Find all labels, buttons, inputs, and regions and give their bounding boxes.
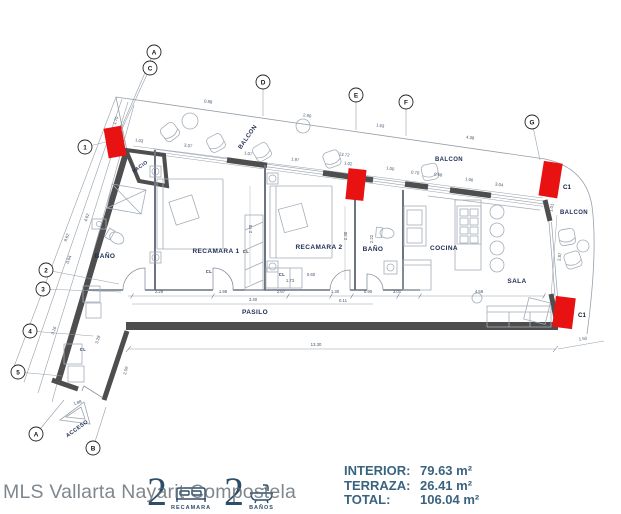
grid-bubble-label: 4 xyxy=(28,328,32,335)
grid-bubble-label: 5 xyxy=(16,369,20,376)
dimension-label: 1.98 xyxy=(219,289,228,294)
dimension-label: 1.07 xyxy=(244,150,254,156)
grid-leader-line xyxy=(46,270,119,284)
dimension-label: 2.90 xyxy=(303,112,313,118)
grid-bubble-label: C xyxy=(148,65,153,72)
grid-bubble-label: E xyxy=(354,92,359,99)
grid-bubble-label: 2 xyxy=(44,267,48,274)
dimension-label: 4.58 xyxy=(475,289,484,294)
room-label-balcon: BALCON xyxy=(435,157,463,163)
room-label-sala: SALA xyxy=(507,278,526,285)
dimension-label: 2.22 xyxy=(369,234,374,243)
dimension-label: 3.28 xyxy=(94,334,101,344)
room-label-cl: CL xyxy=(243,249,249,254)
dimension-label: 1.97 xyxy=(291,156,301,162)
grid-bubble-label: G xyxy=(530,119,535,126)
room-label-cocina: COCINA xyxy=(430,245,458,252)
column-marker-red xyxy=(345,168,366,201)
dimension-label: 13.30 xyxy=(311,342,322,347)
grid-bubble-label: A xyxy=(34,431,39,438)
dimension-label: 1.30 xyxy=(331,289,340,294)
dimension-label: 13.72 xyxy=(339,151,351,158)
dimension-label: 0.88 xyxy=(204,98,214,104)
floorplan-page: { "watermark": "MLS Vallarta Nayarit Com… xyxy=(0,0,621,511)
dimension-label: 0.68 xyxy=(434,171,444,177)
room-label-cl: CL xyxy=(80,347,86,352)
room-label-balcon: BALCON xyxy=(560,210,588,216)
room-label-baño: BAÑO xyxy=(363,244,384,253)
walls xyxy=(52,150,558,400)
grid-bubble-label: A xyxy=(152,49,157,56)
grid-bubble-label: F xyxy=(404,99,408,106)
dimension-label: 1.70 xyxy=(112,115,120,125)
room-label-recamara-1: RECAMARA 1 xyxy=(192,248,239,255)
area-stats: INTERIOR: 79.63 m² TERRAZA: 26.41 m² TOT… xyxy=(344,464,479,508)
bathrooms-label: BAÑOS xyxy=(249,505,274,511)
grid-bubble-label: 3 xyxy=(41,286,45,293)
grid-bubble-label: D xyxy=(261,79,266,86)
dimension-label: 3.37 xyxy=(184,142,194,148)
grid-leader-line xyxy=(30,331,93,336)
grid-leader-line xyxy=(121,68,150,131)
dimension-label: 1.88 xyxy=(73,399,83,407)
dimension-label: 0.60 xyxy=(307,272,316,277)
dimension-label: 0.90 xyxy=(364,289,373,294)
floorplan-drawing: ACDEFG12345AB VACIOBAÑORECAMARA 1RECAMAR… xyxy=(0,0,621,511)
bedrooms-label: RECAMARA xyxy=(171,505,211,511)
room-label-baño: BAÑO xyxy=(95,251,116,260)
dimension-label: 1.06 xyxy=(465,176,475,182)
watermark-text: MLS Vallarta Nayarit Compostela xyxy=(3,481,296,504)
dimension-label: 2.67 xyxy=(277,289,286,294)
dimension-label: 1.73 xyxy=(286,278,295,283)
column-marker-red xyxy=(538,161,562,199)
dimension-label: 1.01 xyxy=(548,203,554,213)
dimension-label: 2.29 xyxy=(155,289,164,294)
sofa xyxy=(472,293,551,327)
grid-bubble-label: B xyxy=(91,445,96,452)
dimension-label: 3.04 xyxy=(495,181,505,187)
dimension-label: 2.87 xyxy=(556,252,562,262)
dimension-labels: 0.882.901.634.381.701.033.371.071.9713.7… xyxy=(50,98,588,406)
dimension-label: 0.70 xyxy=(411,169,421,175)
dimension-label: 1.03 xyxy=(135,137,145,143)
room-label-pasilo: PASILO xyxy=(242,309,268,316)
stat-terraza: TERRAZA: 26.41 m² xyxy=(344,479,479,494)
stat-total: TOTAL: 106.04 m² xyxy=(344,493,479,508)
column-label-C1: C1 xyxy=(578,312,586,319)
dimension-label: 9.62 xyxy=(63,232,71,242)
room-label-cl: CL xyxy=(279,272,285,277)
dimension-label: 2.70 xyxy=(248,224,253,233)
dimension-label: 1.63 xyxy=(376,122,386,128)
column-label-C1: C1 xyxy=(563,184,571,191)
room-label-recamara-2: RECAMARA 2 xyxy=(295,244,342,251)
dimension-label: 4.38 xyxy=(466,134,476,140)
dimension-label: 1.50 xyxy=(578,336,587,342)
dimension-label: 0.04 xyxy=(65,254,73,264)
room-label-cl: CL xyxy=(206,269,212,274)
grid-bubble-label: 1 xyxy=(83,144,87,151)
dimension-label: 2.30 xyxy=(343,231,348,240)
dimension-label: 3.40 xyxy=(249,297,258,302)
dimension-label: 3.01 xyxy=(393,289,402,294)
dimension-label: 1.02 xyxy=(344,160,354,166)
bed-2 xyxy=(267,173,332,272)
kitchen-fixtures xyxy=(403,196,540,290)
dimension-label: 0.11 xyxy=(339,298,348,303)
dimension-label: 1.00 xyxy=(386,165,396,171)
grid-bubbles: ACDEFG12345AB xyxy=(11,45,540,455)
dimension-label: 4.62 xyxy=(83,212,91,222)
dimension-label: 2.59 xyxy=(122,365,129,375)
column-marker-red xyxy=(552,296,576,329)
stat-interior: INTERIOR: 79.63 m² xyxy=(344,464,479,479)
